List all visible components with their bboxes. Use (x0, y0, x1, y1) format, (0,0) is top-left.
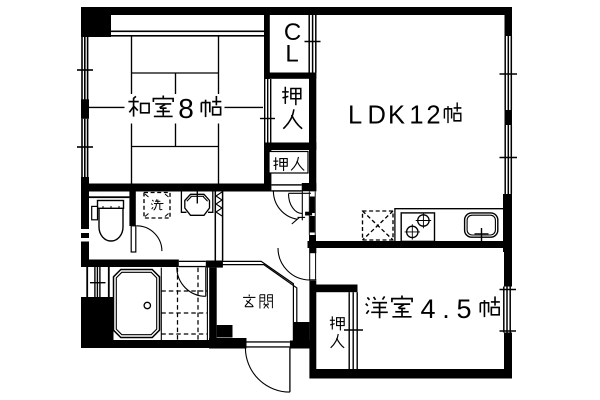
svg-text:.: . (442, 294, 450, 324)
svg-text:L: L (348, 101, 362, 129)
svg-text:1: 1 (409, 101, 423, 129)
svg-text:L: L (285, 41, 298, 68)
svg-text:5: 5 (456, 294, 471, 324)
svg-text:K: K (388, 101, 405, 129)
svg-text:2: 2 (426, 101, 440, 129)
svg-text:4: 4 (420, 294, 435, 324)
svg-text:8: 8 (178, 93, 194, 124)
svg-text:D: D (368, 101, 386, 129)
